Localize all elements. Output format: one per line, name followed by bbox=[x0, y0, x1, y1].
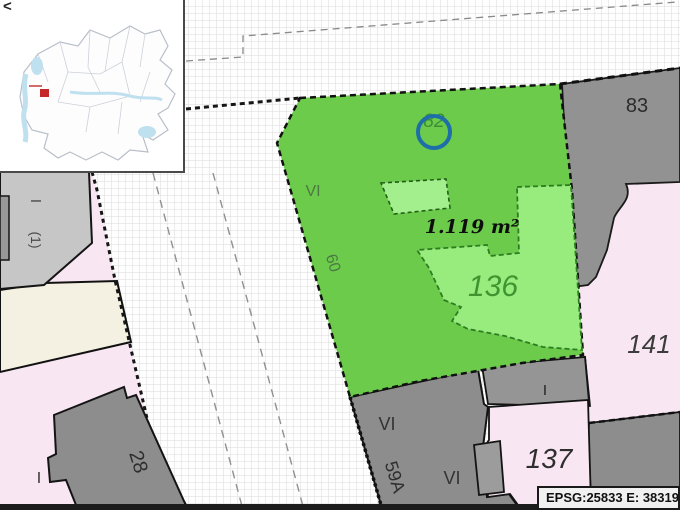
status-bar: EPSG:25833 E: 38319 bbox=[537, 486, 680, 510]
floors-label-green: VI bbox=[305, 183, 320, 200]
location-marker-text-smudge bbox=[29, 85, 42, 87]
area-label: 1.119 m² bbox=[425, 216, 520, 238]
floors-label-finger: I bbox=[543, 382, 547, 399]
overview-map bbox=[0, 0, 183, 171]
floors-label-west-pink: I bbox=[37, 470, 41, 487]
location-marker-icon bbox=[40, 89, 49, 97]
units-label-west-building: (1) bbox=[28, 231, 44, 248]
floors-label-west-building: I bbox=[27, 199, 44, 203]
parcel-number-137: 137 bbox=[526, 443, 574, 474]
epsg-coordinates: EPSG:25833 E: 38319 bbox=[546, 490, 679, 505]
parcel-number-141: 141 bbox=[627, 329, 670, 359]
floors-label-block-lower: VI bbox=[443, 468, 460, 488]
building-on-selected-parcel bbox=[381, 179, 450, 214]
building-bump bbox=[474, 441, 504, 495]
map-viewport[interactable]: 82 VI 60 1.119 m² 136 83 141 137 I VI 59… bbox=[0, 0, 680, 510]
parcel-number-136: 136 bbox=[468, 270, 518, 303]
floors-label-block-upper: VI bbox=[378, 414, 395, 434]
overview-collapse-icon[interactable]: < bbox=[3, 0, 12, 14]
house-number-83: 83 bbox=[626, 95, 648, 117]
building-west-annex bbox=[0, 196, 9, 260]
overview-map-panel[interactable]: < bbox=[0, 0, 185, 173]
